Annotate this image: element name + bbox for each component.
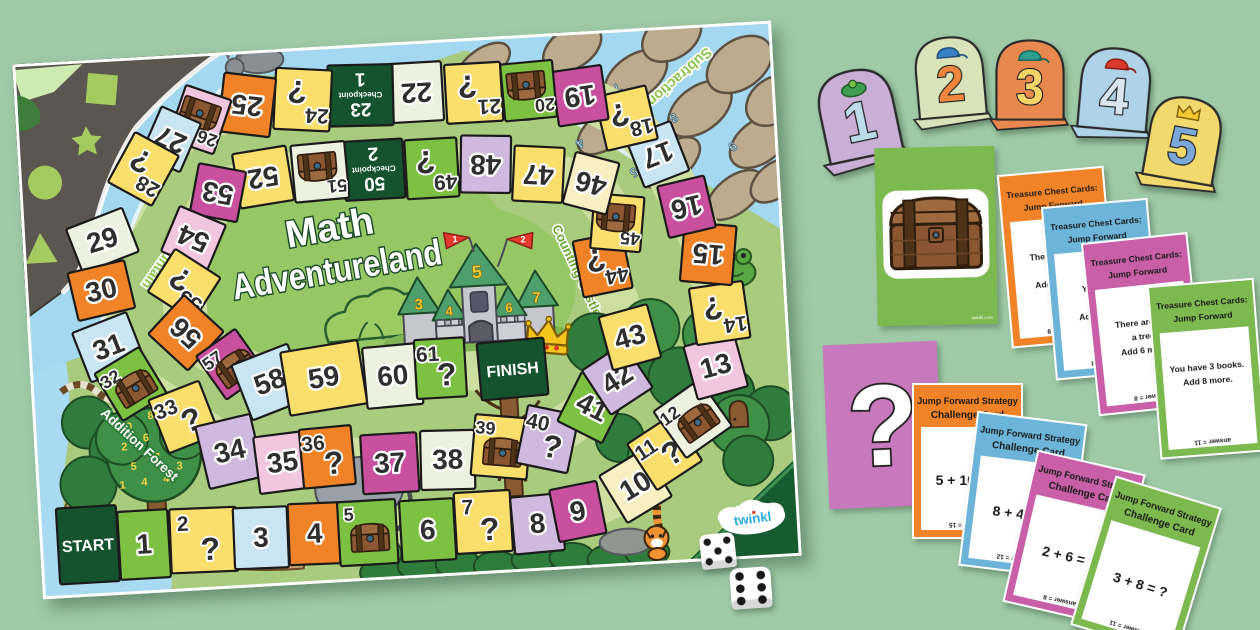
svg-text:Jump Forward Strategy: Jump Forward Strategy: [917, 396, 1018, 406]
svg-text:twinkl.com: twinkl.com: [972, 315, 993, 320]
svg-text:2: 2: [934, 55, 967, 113]
svg-text:?: ?: [845, 361, 921, 492]
svg-text:4: 4: [1098, 66, 1132, 125]
svg-text:3: 3: [1016, 59, 1044, 115]
